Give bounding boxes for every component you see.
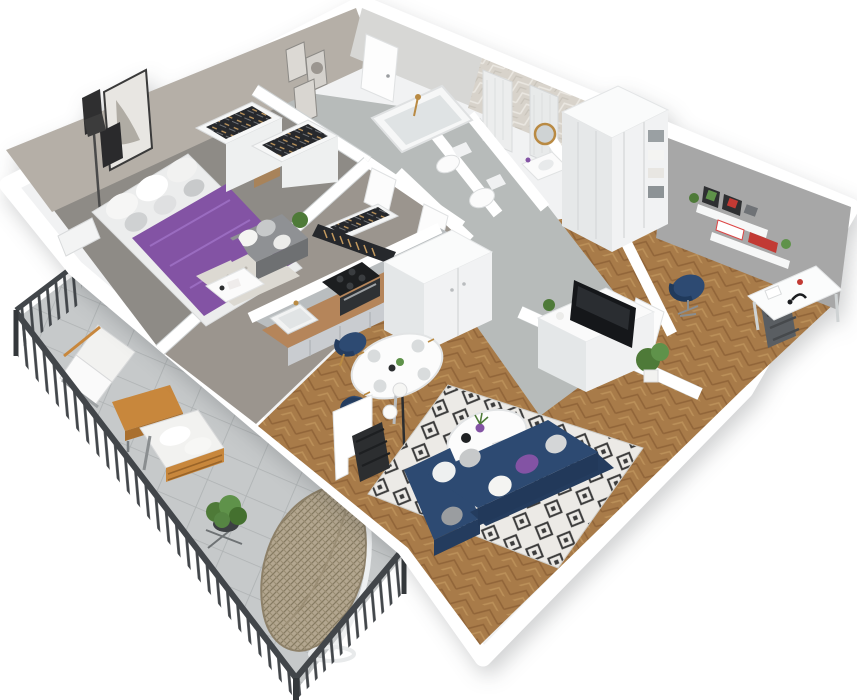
kitchen-faucet: [294, 301, 299, 306]
floorplan-stage: 3D isometric cutaway floor plan of a fur…: [0, 0, 857, 700]
round-mirror: [535, 124, 555, 144]
black-kettle: [461, 433, 471, 443]
shelf-plant-1: [689, 193, 699, 203]
small-room-plant: [292, 212, 308, 228]
purple-bottle: [526, 158, 531, 163]
hall-wardrobe: [562, 86, 668, 252]
tv-plant: [543, 299, 555, 311]
table-plant: [396, 358, 404, 366]
shelf-plant-2: [781, 239, 791, 249]
apartment-3d-floorplan: 3D isometric cutaway floor plan of a fur…: [0, 0, 857, 700]
purple-vase: [476, 424, 485, 433]
carafe: [389, 365, 396, 372]
